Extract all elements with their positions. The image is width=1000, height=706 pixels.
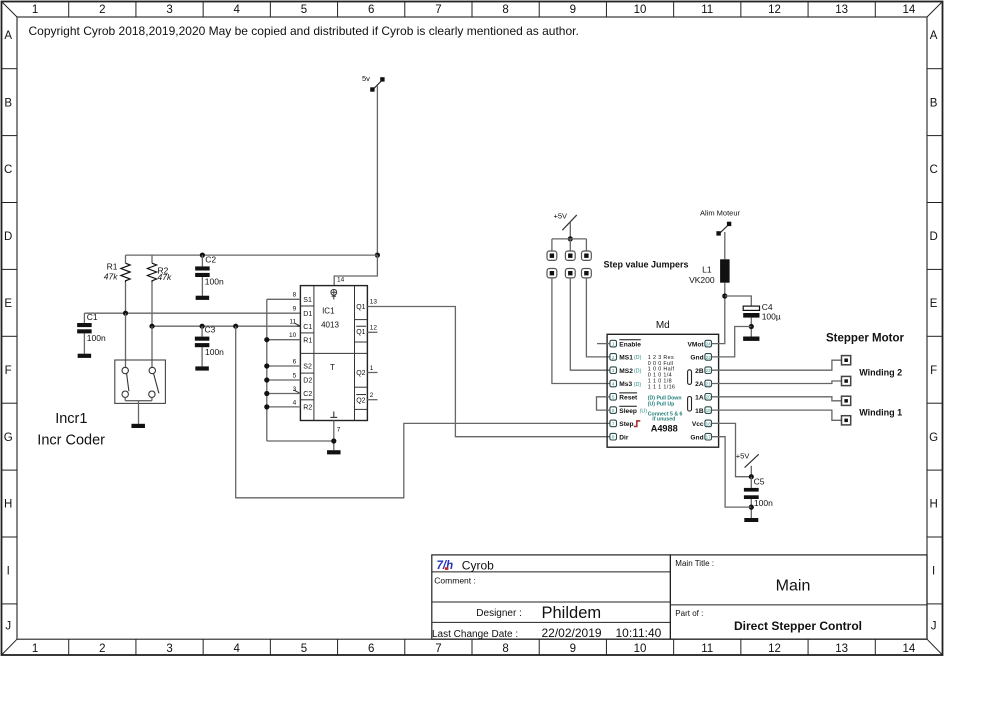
svg-text:2: 2: [99, 4, 105, 16]
svg-text:I: I: [932, 566, 935, 578]
svg-text:2B: 2B: [695, 368, 704, 375]
svg-text:1: 1: [32, 4, 38, 16]
svg-text:Alim Moteur: Alim Moteur: [700, 209, 741, 218]
svg-text:Q2: Q2: [356, 397, 365, 404]
svg-text:Step: Step: [619, 421, 633, 428]
svg-text:12: 12: [370, 325, 378, 332]
svg-text:Md: Md: [656, 320, 670, 331]
svg-text:L1: L1: [702, 264, 712, 274]
svg-text:C2: C2: [303, 391, 312, 398]
svg-text:C1: C1: [303, 324, 312, 331]
svg-text:C5: C5: [754, 476, 765, 486]
svg-text:T: T: [330, 363, 335, 372]
svg-text:G: G: [4, 432, 13, 444]
svg-text:Cyrob: Cyrob: [462, 559, 494, 573]
svg-text:(D): (D): [634, 382, 642, 388]
svg-text:D: D: [929, 231, 937, 243]
svg-text:2: 2: [612, 355, 615, 360]
svg-text:20: 20: [706, 395, 712, 400]
svg-text:Sleep: Sleep: [619, 408, 637, 415]
svg-text:H: H: [929, 499, 937, 511]
svg-text:J: J: [5, 621, 11, 633]
svg-text:3: 3: [293, 386, 297, 393]
svg-text:C: C: [4, 164, 12, 176]
svg-text:4: 4: [612, 381, 615, 386]
svg-text:3: 3: [166, 643, 172, 655]
svg-text:VMot: VMot: [687, 341, 704, 348]
svg-text:Winding 2: Winding 2: [859, 367, 902, 377]
svg-text:Part of :: Part of :: [675, 609, 703, 618]
svg-text:11: 11: [289, 319, 296, 326]
svg-text:8: 8: [293, 292, 297, 299]
svg-text:10: 10: [634, 643, 647, 655]
svg-text:22/02/2019: 22/02/2019: [542, 626, 602, 640]
svg-text:12: 12: [768, 643, 781, 655]
svg-text:7: 7: [435, 643, 441, 655]
svg-text:C3: C3: [205, 325, 216, 335]
svg-text:5: 5: [293, 372, 297, 379]
svg-text:3: 3: [612, 368, 615, 373]
svg-text:F: F: [930, 365, 937, 377]
svg-text:Main Title :: Main Title :: [675, 559, 714, 568]
svg-text:+5V: +5V: [554, 211, 568, 220]
svg-text:12: 12: [768, 4, 781, 16]
svg-text:9: 9: [570, 4, 576, 16]
svg-text:Last Change Date :: Last Change Date :: [432, 629, 518, 640]
svg-text:Stepper Motor: Stepper Motor: [826, 333, 904, 345]
svg-text:11: 11: [701, 643, 713, 655]
svg-text:H: H: [4, 499, 12, 511]
svg-text:6: 6: [293, 358, 297, 365]
svg-text:4: 4: [234, 643, 241, 655]
svg-text:13: 13: [370, 299, 378, 306]
svg-text:D2: D2: [303, 378, 312, 385]
svg-text:Step value Jumpers: Step value Jumpers: [604, 259, 689, 269]
svg-text:A4988: A4988: [651, 424, 678, 434]
svg-text:G: G: [929, 432, 938, 444]
svg-text:IC1: IC1: [322, 307, 335, 316]
svg-text:R2: R2: [303, 405, 312, 412]
svg-text:100µ: 100µ: [762, 312, 781, 322]
svg-text:I: I: [7, 566, 10, 578]
svg-text:C: C: [929, 164, 937, 176]
svg-text:2A: 2A: [695, 381, 704, 388]
svg-text:R1: R1: [303, 337, 312, 344]
svg-text:Comment :: Comment :: [434, 575, 476, 585]
svg-text:1: 1: [370, 365, 374, 372]
svg-text:Reset: Reset: [619, 395, 638, 402]
svg-text:4013: 4013: [321, 321, 339, 330]
svg-text:9: 9: [570, 643, 576, 655]
svg-text:24: 24: [706, 342, 712, 347]
svg-text:5: 5: [612, 395, 615, 400]
svg-text:E: E: [930, 298, 938, 310]
svg-text:Vcc: Vcc: [692, 421, 704, 428]
svg-text:J: J: [931, 621, 937, 633]
svg-text:Q1: Q1: [356, 329, 365, 336]
svg-text:11: 11: [701, 4, 713, 16]
svg-text:3: 3: [166, 4, 172, 16]
svg-text:14: 14: [902, 643, 915, 655]
svg-text:Main: Main: [776, 578, 811, 595]
svg-text:17: 17: [706, 435, 712, 440]
svg-text:R1: R1: [107, 262, 118, 272]
svg-text:B: B: [4, 97, 12, 109]
svg-text:Q1: Q1: [356, 304, 365, 311]
svg-text:23: 23: [706, 355, 712, 360]
svg-text:100n: 100n: [205, 347, 224, 357]
svg-text:13: 13: [835, 4, 848, 16]
svg-text:+5V: +5V: [736, 451, 750, 460]
svg-text:1A: 1A: [695, 395, 704, 402]
svg-text:A: A: [4, 30, 12, 42]
svg-text:47k: 47k: [158, 272, 172, 282]
svg-text:13: 13: [835, 643, 848, 655]
svg-text:100n: 100n: [87, 333, 106, 343]
svg-text:Enable: Enable: [619, 341, 641, 348]
svg-text:D1: D1: [303, 311, 312, 318]
svg-text:1: 1: [32, 643, 38, 655]
svg-text:(U): (U): [640, 408, 648, 414]
svg-text:6: 6: [368, 643, 374, 655]
svg-text:5v: 5v: [362, 74, 370, 83]
svg-text:10:11:40: 10:11:40: [616, 626, 662, 640]
svg-text:7/h: 7/h: [437, 560, 454, 572]
svg-text:7: 7: [612, 421, 615, 426]
svg-text:Q2: Q2: [356, 370, 365, 377]
svg-text:14: 14: [337, 277, 345, 284]
svg-text:47k: 47k: [104, 271, 118, 281]
svg-text:Incr1: Incr1: [55, 411, 87, 427]
svg-text:5: 5: [301, 4, 307, 16]
svg-text:VK200: VK200: [689, 275, 715, 285]
svg-text:5: 5: [301, 643, 307, 655]
svg-text:9: 9: [293, 306, 297, 313]
svg-text:4: 4: [234, 4, 241, 16]
svg-text:10: 10: [289, 332, 297, 339]
svg-text:8: 8: [502, 4, 508, 16]
svg-text:Gnd: Gnd: [690, 434, 703, 441]
svg-text:S2: S2: [303, 364, 312, 371]
svg-text:D: D: [4, 231, 12, 243]
svg-text:Ms3: Ms3: [619, 381, 632, 388]
svg-text:F: F: [5, 365, 12, 377]
svg-text:100n: 100n: [754, 498, 773, 508]
svg-text:MS1: MS1: [619, 355, 633, 362]
svg-text:7: 7: [337, 427, 341, 434]
svg-text:1 1 1 1/16: 1 1 1 1/16: [648, 385, 675, 391]
svg-text:18: 18: [706, 421, 712, 426]
svg-text:Incr Coder: Incr Coder: [37, 433, 105, 449]
svg-text:A: A: [930, 30, 938, 42]
svg-text:21: 21: [706, 381, 712, 386]
svg-text:7: 7: [435, 4, 441, 16]
svg-text:(D): (D): [634, 355, 642, 361]
svg-text:6: 6: [368, 4, 374, 16]
svg-text:Direct Stepper Control: Direct Stepper Control: [734, 619, 862, 633]
svg-text:1B: 1B: [695, 408, 704, 415]
svg-text:100n: 100n: [205, 276, 224, 286]
svg-text:22: 22: [706, 368, 712, 373]
svg-text:2: 2: [370, 392, 374, 399]
svg-text:if unused: if unused: [652, 416, 675, 422]
svg-text:Gnd: Gnd: [690, 355, 703, 362]
svg-text:MS2: MS2: [619, 368, 633, 375]
svg-text:S1: S1: [303, 297, 312, 304]
svg-text:(U) Pull Up: (U) Pull Up: [648, 401, 675, 407]
svg-text:(D): (D): [634, 369, 642, 375]
svg-text:6: 6: [612, 408, 615, 413]
svg-text:C1: C1: [87, 312, 98, 322]
svg-text:19: 19: [706, 408, 712, 413]
svg-text:Copyright Cyrob 2018,2019,2020: Copyright Cyrob 2018,2019,2020 May be co…: [29, 24, 579, 38]
svg-text:4: 4: [293, 399, 297, 406]
svg-text:C2: C2: [205, 254, 216, 264]
svg-text:Phildem: Phildem: [542, 604, 602, 622]
svg-text:10: 10: [634, 4, 647, 16]
svg-text:Designer :: Designer :: [476, 608, 522, 619]
svg-text:14: 14: [902, 4, 915, 16]
svg-text:2: 2: [99, 643, 105, 655]
svg-text:8: 8: [612, 435, 615, 440]
svg-text:E: E: [4, 298, 12, 310]
svg-text:Winding 1: Winding 1: [859, 408, 902, 418]
svg-text:1: 1: [612, 342, 615, 347]
svg-text:C4: C4: [762, 302, 773, 312]
svg-text:B: B: [930, 97, 938, 109]
svg-text:8: 8: [502, 643, 508, 655]
svg-text:Dir: Dir: [619, 434, 629, 441]
